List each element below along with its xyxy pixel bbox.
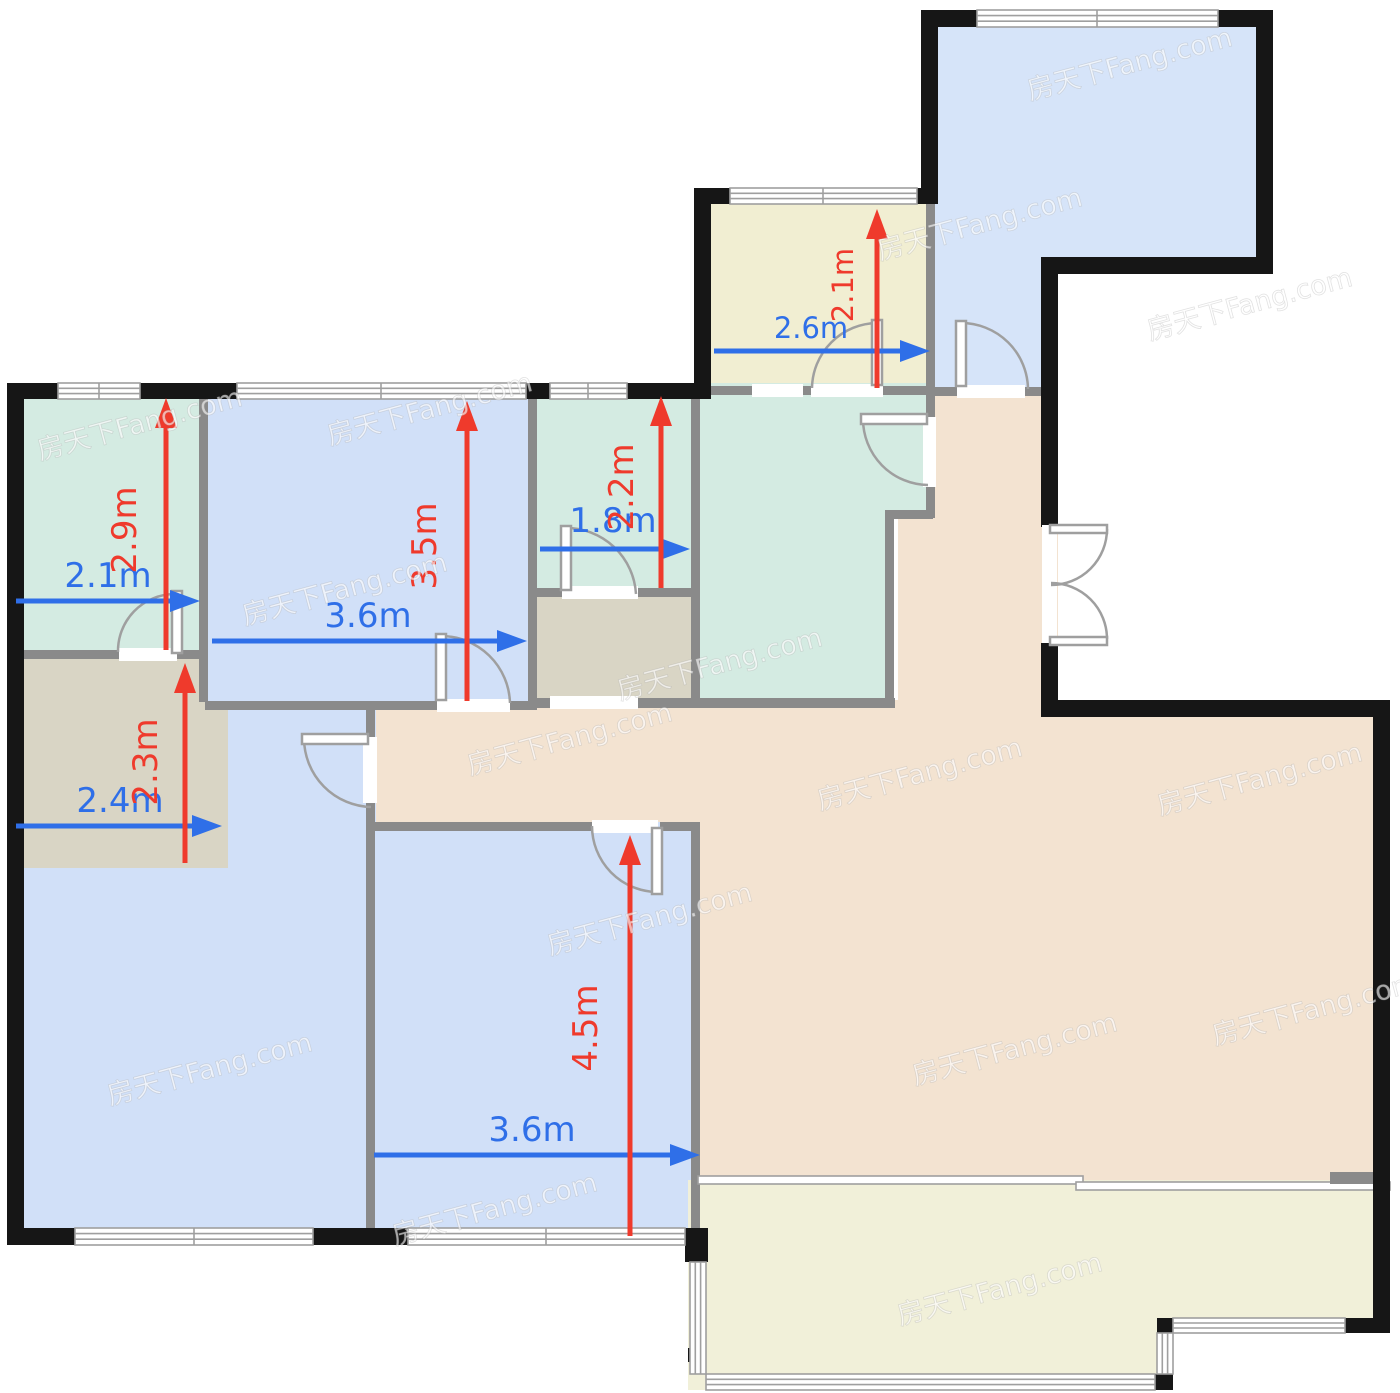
window [75,1228,313,1245]
wall-segment [7,383,24,1245]
wall-segment [885,519,894,707]
wall-segment [711,386,752,395]
wall-segment [366,803,375,1228]
opening [752,384,803,397]
dim-label: 3.6m [488,1110,575,1150]
dim-label: 2.3m [126,718,166,805]
wall-segment [1155,1374,1173,1390]
wall-segment [1157,1318,1173,1333]
wall-segment [935,387,957,396]
sliding-panel [698,1176,1083,1184]
wall-segment [693,698,895,708]
dim-label: 2.2m [602,443,642,530]
wall-segment [694,188,730,204]
window [690,1262,706,1374]
wall-segment [7,1228,75,1245]
floor-plan-svg: 2.1m 3.6m 1.8m 2.6m 2.4m 3.6m 2.9m 3.5m … [0,0,1400,1393]
wall-segment [1373,700,1390,1333]
wall-segment [694,188,711,399]
wall-segment [205,701,437,710]
window [58,383,140,399]
wall-segment [1256,10,1273,273]
dim-label: 2.9m [105,486,145,573]
wall-segment [921,10,938,202]
wall-segment [1345,1318,1390,1333]
opening [592,820,658,833]
room-bedroom-bottom-middle [366,822,700,1244]
window [730,188,917,204]
opening [437,699,510,712]
opening [923,417,936,487]
wall-segment [1041,700,1390,717]
window [550,383,627,399]
window [1173,1318,1345,1333]
opening [562,586,638,599]
wall-segment [921,10,977,27]
window [977,10,1218,27]
room-alcove [16,658,228,868]
wall-segment [1043,257,1273,274]
floor-plan: 2.1m 3.6m 1.8m 2.6m 2.4m 3.6m 2.9m 3.5m … [0,0,1400,1393]
wall-segment [1041,257,1058,527]
wall-segment [685,1228,708,1262]
window [706,1374,1155,1390]
wall-segment [366,702,375,737]
dim-label: 4.5m [566,984,606,1071]
wall-segment [530,698,550,708]
dim-label: 2.1m [826,248,860,322]
wall-segment [528,383,537,710]
window [1157,1333,1173,1374]
opening [363,737,377,803]
wall-segment [370,822,592,831]
wall-segment [885,510,933,519]
wall-segment [638,588,697,597]
wall-segment [530,588,562,597]
